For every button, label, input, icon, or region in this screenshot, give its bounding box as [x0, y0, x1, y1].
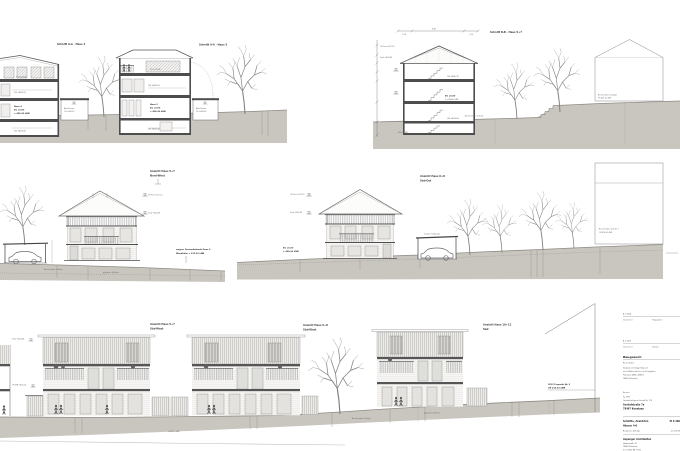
- dim-value: 1,24: [469, 34, 473, 36]
- terrain-note: Bestehendes Gelände: [44, 268, 63, 271]
- tb-line: mit 6 Wohneinheiten im Zentgraben: [623, 370, 656, 373]
- level-mark-icon: [306, 212, 311, 214]
- level-mark-icon: [393, 69, 398, 71]
- level-note: OK FFB +410,04: [12, 384, 26, 387]
- top-right-section: OK First +417,35 Trauf +414,85 8,49 1,24…: [373, 29, 680, 150]
- tree-icon: [217, 45, 267, 114]
- level-og: OG +409,15: [14, 91, 27, 94]
- drawing-title: Schnitt A-A · Haus 4: [57, 42, 85, 46]
- neighbour-building: Bestehendes Gebäude OK 425,10 üNN: [595, 40, 663, 102]
- level-note: OK First +417,10: [290, 193, 304, 196]
- tree-icon: [482, 204, 517, 252]
- tb-number: A 1.1005: [623, 340, 631, 343]
- level-nn: = +406,40 üNN: [445, 98, 459, 101]
- neighbour-note: OK 425,10 üNN: [598, 98, 612, 100]
- top-left-sections: DG +412,45 OG +409,15 Haus 4 EG ±0,00 = …: [0, 42, 287, 143]
- cut-building-sliver: [0, 345, 10, 416]
- level-dg: DG +412,45: [16, 76, 26, 79]
- house-name: Haus 5: [150, 104, 158, 106]
- tb-line: 78462 Konstanz: [623, 445, 637, 448]
- level-nn: = 406,40 üNN: [150, 111, 166, 113]
- tb-architect: Aspanger Architekten: [623, 438, 652, 441]
- level-mark-icon: [28, 339, 33, 341]
- level-note: OK First +417,10: [148, 194, 162, 197]
- drawing-title: Ansicht Haus 10+12: [483, 323, 512, 327]
- benchmark-note: OK 410,54 üNN: [548, 388, 565, 390]
- gable-outline: [545, 304, 595, 413]
- level-note: Trauf +414,85: [380, 56, 392, 59]
- existing-building: Bestehendes Geb. Nr. 7 OK 425,00 üNN: [595, 163, 663, 244]
- tb-line: Fa. ZPG: [623, 397, 630, 399]
- boundary-note: wegen: Grenzabstände Haus 6: [176, 248, 211, 251]
- tree-icon: [519, 191, 562, 250]
- level-note: Trauf +414,85: [290, 211, 302, 214]
- carport-label: Carport Tiefgarage: [424, 233, 440, 236]
- tb-sheet-title: Schnitte, Ansichten: [623, 420, 649, 423]
- level-mark-icon: [142, 194, 147, 196]
- level-note: Trauf +414,85: [12, 338, 24, 341]
- middle-left-elevation: OK First +417,10 Trauf +414,85 Ansicht H…: [0, 169, 225, 282]
- existing-note: OK 425,00 üNN: [599, 232, 613, 234]
- building-haus57: [25, 335, 155, 416]
- roof-dimension: [397, 30, 480, 33]
- bottom-elevation: Trauf +414,85 OK FFB +410,04: [0, 304, 600, 446]
- level-mark-icon: [142, 212, 147, 214]
- drawing-subtitle: Nord-West: [150, 174, 166, 178]
- carport: [3, 243, 48, 264]
- box-label: Abstellraum: [64, 107, 75, 110]
- house-nordwest: [59, 191, 144, 261]
- tree-icon: [555, 202, 588, 248]
- level-ug: UG +403,30: [14, 130, 26, 133]
- terrain-note: Bestehendes Gelände: [352, 417, 371, 420]
- terrain-note: geplantes Gelände: [103, 271, 119, 274]
- tb-number: A 1.1004: [623, 313, 632, 316]
- tb-index: Bearbeitet 2013-A: [623, 430, 640, 433]
- drawing-title: Schnitt A-A · Haus 5: [199, 43, 227, 47]
- tb-line: Neubau von Doppelhäusern: [623, 367, 648, 370]
- tb-owner-bold: Seehofstraße 7a: [623, 404, 645, 407]
- existing-note: Bestehendes Geb. Nr. 7: [599, 228, 619, 231]
- benchmark-note: 2013 Fixpunkt Nr. 9: [548, 383, 571, 386]
- house-name: Haus 4: [14, 106, 22, 108]
- storage-box-1: Abstellraum OK +409,90: [60, 98, 89, 120]
- drawing-subtitle: Süd-Ost: [420, 179, 432, 183]
- tb-line: Grundstücksgesellschaft Nr. 170: [623, 399, 653, 402]
- drawing-title: Ansicht Haus 6+8: [420, 174, 445, 178]
- terrain-note: Bestehendes Gelände: [465, 115, 484, 118]
- drawing-title: Schnitt B-B · Haus 5+7: [490, 30, 522, 34]
- tb-caption: Geprüft: [652, 346, 659, 349]
- carport: Carport Tiefgarage: [416, 233, 458, 261]
- level-eg: EG ±0,00: [445, 96, 456, 98]
- terrain-lower-line: [0, 441, 345, 445]
- box-label: Abstellraum: [196, 107, 207, 110]
- dim-value: 1,24: [402, 34, 406, 36]
- tb-line: Hauptstraße 21: [623, 442, 637, 445]
- drawing-title: Ansicht Haus 5+7: [150, 322, 175, 326]
- drawing-subtitle: Süd-West: [150, 327, 164, 331]
- tb-sheet-title: Häuser 4-6: [623, 425, 638, 428]
- tb-subcaption: Bauvorhaben: [623, 362, 634, 365]
- drawing-title: Ansicht Haus 5+7: [150, 169, 175, 173]
- middle-right-elevation: OK First +417,10 Trauf +414,85 EG ±0,00 …: [237, 163, 678, 280]
- box-level: OK +409,90: [64, 110, 74, 113]
- tb-scale: M 1:100: [670, 420, 680, 423]
- terrain-level: 410,0 ü NN: [398, 132, 408, 134]
- terrain-level: +410,10 üNN: [168, 430, 180, 433]
- level-eg: EG ±0,00: [283, 248, 294, 250]
- level-note: Trauf +414,85: [148, 212, 160, 215]
- storage-box-2: Abstellraum OK +409,90: [192, 98, 219, 120]
- level-mark-icon: [30, 385, 35, 387]
- tree-icon: [0, 186, 44, 247]
- section-haus4: DG +412,45 OG +409,15 Haus 4 EG ±0,00 = …: [0, 56, 59, 138]
- box-level: OK +409,90: [196, 110, 206, 113]
- level-eg: EG ±0,00: [14, 110, 25, 112]
- tb-line: 78467 Konstanz: [623, 377, 637, 380]
- section-haus57: OG +409,75 EG ±0,00 = +406,40 üNN UG +40…: [393, 46, 478, 135]
- level-og: OG +409,15: [148, 84, 161, 87]
- level-note: OK First +417,35: [380, 45, 394, 48]
- level-ug: UG +403,30: [447, 117, 459, 120]
- tb-owner-bold: 78467 Konstanz: [623, 408, 644, 411]
- building-haus68: [187, 335, 305, 415]
- level-nn: = 406,40 üNN: [14, 113, 30, 115]
- level-eg: EG ±0,00: [150, 108, 161, 110]
- tb-heading: Baugesuch: [623, 355, 641, 359]
- house-suedost: [319, 190, 402, 259]
- boundary-note: Wandhöhe = 412,50 üNN: [176, 253, 204, 255]
- level-dg: DG +412,45: [150, 68, 160, 71]
- level-nn: = 409,40 üNN: [283, 251, 299, 253]
- drawing-subtitle: Süd-West: [303, 328, 317, 332]
- building-haus1012: [372, 330, 487, 407]
- tb-line: Flurstück 4985, 4985/1: [623, 374, 644, 377]
- drawing-sheet: DG +412,45 OG +409,15 Haus 4 EG ±0,00 = …: [0, 0, 680, 451]
- tb-caption: Gezeichnet: [623, 319, 633, 322]
- plan-canvas: DG +412,45 OG +409,15 Haus 4 EG ±0,00 = …: [0, 0, 680, 451]
- title-block: A 1.1004 Gezeichnet Freigegeben A 1.1005…: [623, 313, 680, 451]
- drawing-title: Ansicht Haus 6+8: [303, 323, 328, 327]
- level-mark-icon: [393, 92, 398, 94]
- tb-caption: Gezeichnet: [623, 346, 633, 349]
- drawing-subtitle: Süd: [483, 327, 489, 331]
- tb-caption: Freigegeben: [652, 319, 662, 322]
- tree-icon: [534, 48, 580, 112]
- level-og: OG +409,75: [447, 75, 460, 78]
- tb-caption: Bauherr: [623, 391, 630, 394]
- dim-value: 8,49: [432, 29, 436, 31]
- neighbour-note: Bestehendes Gebäude: [598, 94, 617, 97]
- level-mark-icon: [306, 194, 311, 196]
- tree-icon: [494, 63, 535, 119]
- level-ug: UG +400,30: [148, 128, 160, 131]
- tb-date: 21.3.2013: [671, 431, 680, 433]
- terrain-note: geplantes Gelände: [424, 412, 440, 415]
